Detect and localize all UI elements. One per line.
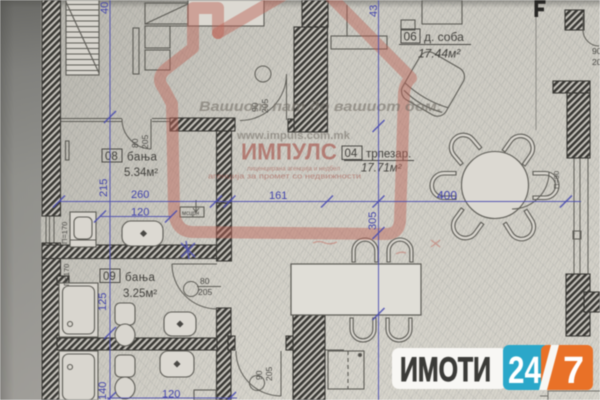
svg-text:305: 305	[367, 212, 379, 230]
svg-text:П=90: П=90	[552, 171, 561, 189]
svg-text:260: 260	[131, 189, 149, 201]
svg-text:205: 205	[198, 287, 212, 297]
svg-text:Вашиот пат до вашиот дом:: Вашиот пат до вашиот дом:	[199, 99, 442, 114]
svg-text:08: 08	[105, 151, 118, 163]
svg-text:161: 161	[269, 190, 287, 202]
svg-text:5.34м²: 5.34м²	[124, 167, 158, 179]
svg-text:09: 09	[103, 271, 116, 283]
svg-text:140: 140	[97, 382, 109, 400]
svg-text:3.25м²: 3.25м²	[123, 288, 157, 300]
svg-text:120: 120	[162, 389, 180, 400]
svg-text:120: 120	[131, 207, 149, 219]
svg-text:205: 205	[264, 367, 274, 381]
svg-text:П=170: П=170	[60, 222, 69, 244]
svg-text:д. соба: д. соба	[424, 30, 464, 44]
svg-text:90: 90	[592, 46, 600, 56]
svg-text:бања: бања	[125, 272, 156, 284]
svg-text:24: 24	[508, 350, 541, 392]
svg-text:20: 20	[592, 57, 600, 67]
svg-text:17.44м²: 17.44м²	[418, 47, 461, 61]
svg-text:агенција за промет со недвижно: агенција за промет со недвижности	[208, 174, 361, 181]
svg-text:ИМПУЛС: ИМПУЛС	[241, 139, 337, 165]
svg-text:43: 43	[368, 5, 380, 17]
svg-text:40: 40	[99, 2, 111, 14]
svg-text:80: 80	[200, 276, 210, 286]
svg-text:ИМОТИ: ИМОТИ	[400, 351, 491, 389]
svg-text:бања: бања	[127, 152, 158, 164]
svg-text:90: 90	[254, 370, 264, 380]
svg-text:205: 205	[140, 135, 150, 149]
svg-text:215: 215	[98, 179, 110, 197]
svg-text:П=170: П=170	[62, 264, 71, 286]
svg-text:7: 7	[563, 350, 584, 392]
svg-text:400: 400	[437, 189, 457, 203]
svg-text:125: 125	[97, 293, 109, 311]
svg-text:мсцрн: мсцрн	[182, 211, 199, 217]
svg-text:80: 80	[130, 138, 140, 148]
svg-text:лиценцирана агенција и недбел: лиценцирана агенција и недбел	[247, 165, 340, 173]
svg-text:04: 04	[345, 148, 358, 160]
svg-text:06: 06	[404, 30, 418, 44]
